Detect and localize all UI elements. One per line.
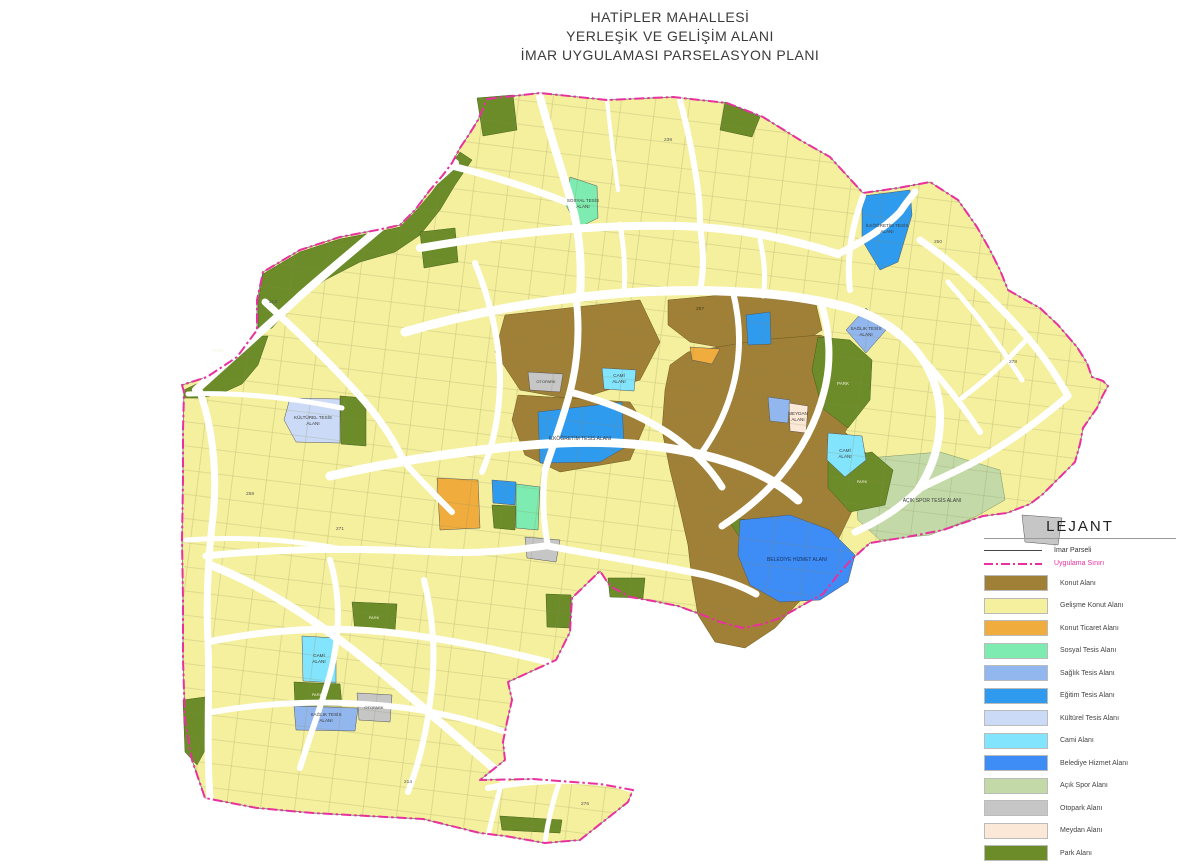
legend-item-label: Park Alanı — [1060, 850, 1092, 857]
legend-item-label: Gelişme Konut Alanı — [1060, 602, 1123, 609]
legend-item-label: Sağlık Tesis Alanı — [1060, 670, 1115, 677]
map-label: 238 — [664, 137, 672, 143]
legend-row-imar-parseli: İmar Parseli — [984, 544, 1176, 557]
map-label: ALANI — [880, 229, 893, 234]
map-label: KÜLTÜREL TESİS — [294, 414, 332, 420]
map-label: PARK — [212, 348, 224, 353]
legend-item: Eğitim Tesis Alanı — [984, 688, 1176, 704]
legend-color-swatch — [984, 598, 1048, 614]
legend-item: Konut Alanı — [984, 575, 1176, 591]
map-label: 257 — [696, 306, 704, 312]
legend-item-label: Konut Alanı — [1060, 580, 1096, 587]
map-label: PARK — [312, 692, 323, 697]
legend-items: Konut Alanı Gelişme Konut Alanı Konut Ti… — [984, 575, 1176, 861]
legend-color-swatch — [984, 845, 1048, 861]
map-label: PARK — [837, 381, 849, 386]
uygulama-siniri-line-swatch — [984, 563, 1042, 565]
legend-item: Otopark Alanı — [984, 800, 1176, 816]
legend-item-label: Eğitim Tesis Alanı — [1060, 692, 1115, 699]
imar-parseli-label: İmar Parseli — [1054, 547, 1091, 554]
map-label: 214 — [404, 779, 412, 785]
map-label: SAĞLIK TESİS — [310, 711, 341, 717]
legend-item: Park Alanı — [984, 845, 1176, 861]
map-label: ALANI — [312, 659, 325, 664]
legend-row-uygulama-siniri: Uygulama Sınırı — [984, 557, 1176, 570]
map-label: CAMİ — [839, 447, 850, 453]
map-label: BELEDİYE HİZMET ALANI — [767, 556, 827, 563]
legend-item: Sosyal Tesis Alanı — [984, 643, 1176, 659]
legend-item: Meydan Alanı — [984, 823, 1176, 839]
legend-color-swatch — [984, 620, 1048, 636]
map-label: ALANI — [859, 332, 872, 337]
legend-item-label: Açık Spor Alanı — [1060, 782, 1108, 789]
legend-color-swatch — [984, 665, 1048, 681]
map-label: ALANI — [576, 204, 589, 209]
map-label: 271 — [336, 526, 344, 532]
legend-color-swatch — [984, 688, 1048, 704]
map-label: AÇIK SPOR TESİS ALANI — [903, 497, 962, 504]
legend-color-swatch — [984, 755, 1048, 771]
map-label: MEYDAN — [788, 411, 808, 416]
legend-item-label: Sosyal Tesis Alanı — [1060, 647, 1116, 654]
map-label: CAMİ — [313, 652, 324, 658]
legend-item: Gelişme Konut Alanı — [984, 598, 1176, 614]
legend-item-label: Cami Alanı — [1060, 737, 1094, 744]
map-label: 250 — [934, 239, 942, 245]
map-label: İLKÖĞRETİM TESİS — [866, 222, 909, 228]
legend-color-swatch — [984, 778, 1048, 794]
legend-item-label: Belediye Hizmet Alanı — [1060, 760, 1128, 767]
legend-item: Kültürel Tesis Alanı — [984, 710, 1176, 726]
legend-panel: LEJANT İmar Parseli Uygulama Sınırı Konu… — [984, 518, 1176, 868]
legend-title: LEJANT — [984, 518, 1176, 535]
map-label: 258 — [246, 491, 254, 497]
legend-divider — [984, 538, 1176, 539]
legend-color-swatch — [984, 643, 1048, 659]
map-label: CAMİ — [613, 372, 624, 378]
legend-item: Cami Alanı — [984, 733, 1176, 749]
map-label: SOSYAL TESİS — [567, 197, 599, 203]
map-label: ALANI — [838, 454, 851, 459]
map-label: OTOPARK — [364, 705, 384, 710]
map-label: ALANI — [612, 379, 625, 384]
legend-color-swatch — [984, 733, 1048, 749]
legend-color-swatch — [984, 575, 1048, 591]
legend-color-swatch — [984, 710, 1048, 726]
map-label: 278 — [1009, 359, 1017, 365]
map-label: 276 — [581, 801, 589, 807]
map-label: SAĞLIK TESİS — [850, 325, 881, 331]
map-label: PARK — [369, 615, 380, 620]
legend-item: Belediye Hizmet Alanı — [984, 755, 1176, 771]
legend-item-label: Meydan Alanı — [1060, 827, 1102, 834]
legend-color-swatch — [984, 823, 1048, 839]
legend-item-label: Otopark Alanı — [1060, 805, 1102, 812]
uygulama-siniri-label: Uygulama Sınırı — [1054, 560, 1104, 567]
map-label: ALANI — [791, 417, 804, 422]
legend-item-label: Kültürel Tesis Alanı — [1060, 715, 1119, 722]
map-label: ALANI — [306, 421, 319, 426]
legend-color-swatch — [984, 800, 1048, 816]
map-label: ALANI — [319, 718, 332, 723]
map-label: PARK — [857, 479, 868, 484]
legend-item: Sağlık Tesis Alanı — [984, 665, 1176, 681]
legend-item-label: Konut Ticaret Alanı — [1060, 625, 1119, 632]
map-label: OTOPARK — [536, 379, 556, 384]
map-label: 213 — [269, 299, 277, 305]
legend-item: Konut Ticaret Alanı — [984, 620, 1176, 636]
legend-item: Açık Spor Alanı — [984, 778, 1176, 794]
imar-parseli-line-swatch — [984, 550, 1042, 551]
map-label: İLKÖĞRETİM TESİS ALANI — [549, 435, 611, 442]
